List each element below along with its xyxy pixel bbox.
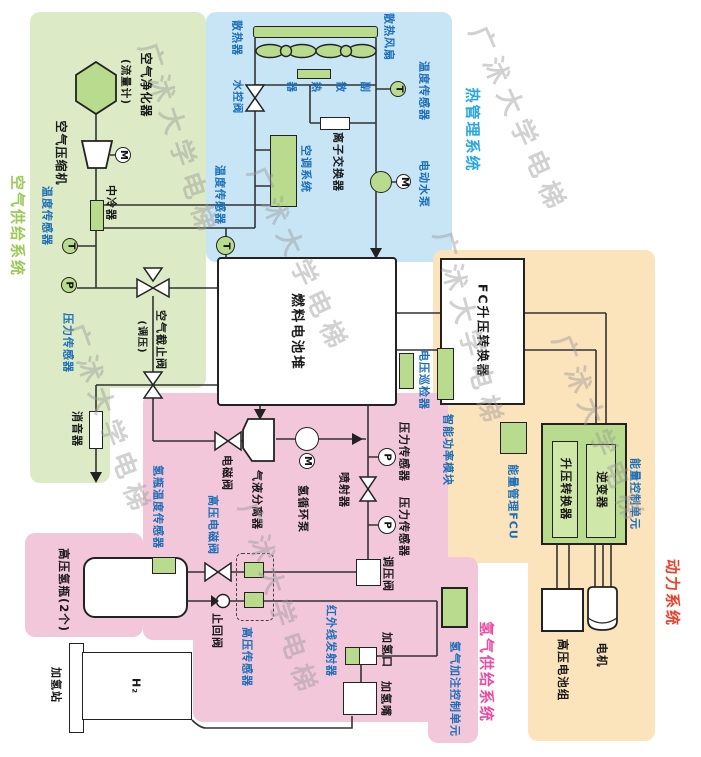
bottle-temp-sensor-label: 氢瓶温度传感器 [153,465,164,549]
air-pressure-sensor: P [61,277,77,293]
check-valve-icon [211,595,230,608]
cooling-fan-icon [256,45,376,58]
p-badge: P [382,521,392,528]
flow-meter-label: (流量计) [120,59,131,105]
h2-pressure-sensor-high: P [378,448,396,466]
injector-valve-icon [360,477,376,501]
compressor-motor: M [115,147,131,163]
ion-exchanger-label: 离子交换器 [333,132,344,192]
arrow-exhaust-out [90,472,102,483]
intercooler-label: 中冷器 [106,185,117,221]
m-badge: M [302,456,312,466]
coolant-temp-in-label: 温度传感器 [215,165,226,225]
h2-pressure-sensor-low: P [378,516,396,534]
hp-sensor-chip-1 [244,562,264,578]
regulator-valve-box [356,559,381,586]
h2-circulation-pump-motor: M [299,453,315,469]
air-temp-sensor-label: 温度传感器 [42,186,53,246]
h2-pressure-high-label: 压力传感器 [399,422,410,482]
hp-solenoid-valve-icon [205,563,231,581]
air-system-title: 空气供给系统 [10,175,25,277]
t-badge: T [65,243,75,250]
purifier-label: 空气净化器 [140,52,152,117]
flow-meter-icon [76,62,116,114]
bottles-label: 高压氢瓶(2个) [57,548,69,632]
purge-valve-label: 电磁阀 [222,455,233,491]
hp-sensor-label: 高压传感器 [242,627,253,687]
m-badge: M [398,177,408,187]
water-valve-label: 水控阀 [232,80,243,115]
hp-sensor-chip-2 [244,592,264,608]
energy-fcu-label: 能量管理FCU [508,464,519,540]
battery-label: 高压电池组 [556,639,568,702]
arrow-recirculation [352,433,363,445]
hp-solenoid-label: 高压电磁阀 [208,495,219,555]
aux-radiator-bar [297,69,331,79]
fill-control-unit-box [441,587,468,628]
coolant-temp-sensor-in: T [216,236,235,255]
air-shutoff-valve-note: (调压) [136,320,146,353]
power-system-title: 动力系统 [665,559,680,627]
ir-transmitter-patch [345,647,360,665]
h2-pressure-low-label: 压力传感器 [399,497,410,557]
energy-control-label: 能量控制单元 [630,458,641,530]
water-pump-motor: M [396,174,411,189]
air-shutoff-valve-label: 空气截止阀 [156,310,167,370]
radiator-bar [253,26,378,38]
thermal-system-title: 热管理系统 [465,87,480,172]
t-badge: T [393,86,403,93]
radiator-label: 散热器 [232,20,243,56]
intercooler-box [90,200,104,231]
ion-exchanger-box [320,117,350,130]
water-control-valve-icon [246,85,264,111]
separator-label: 气液分离器 [252,470,263,530]
voltage-monitor-label: 电压巡检器 [419,350,430,410]
fill-port-label: 加氢口 [382,632,393,668]
p-badge: P [64,281,74,288]
h2-circulation-pump-body [295,427,319,451]
inverter-label: 逆变器 [595,471,607,509]
fill-control-label: 氢气加注控制单元 [450,641,461,737]
m-badge: M [118,150,128,160]
aux-radiator-label: 副散热器 [273,81,371,92]
hv-battery-box [541,588,584,632]
coolant-temp-out-label: 温度传感器 [419,61,430,121]
fuel-cell-stack-label: 燃料电池堆 [289,293,303,371]
fuel-cell-stack [217,257,397,406]
air-temp-sensor: T [62,238,78,254]
motor-label: 电机 [595,643,607,668]
energy-fcu-box [500,422,527,454]
station-label: 加氢站 [51,667,62,703]
ir-transmitter-label: 红外线发射器 [326,605,337,677]
muffler-box [89,411,103,449]
power-module-bar [437,348,454,400]
power-module-label: 智能功率模块 [443,414,454,486]
air-pressure-sensor-label: 压力传感器 [63,313,74,373]
muffler-label: 消音器 [72,411,83,447]
t-badge: T [220,242,230,249]
check-valve-label: 止回阀 [212,613,223,649]
h2-tank-label: H₂ [131,678,142,694]
ac-system-box [270,135,297,207]
air-three-way-valve-icon [137,268,169,297]
purge-solenoid-valve-icon [215,432,241,450]
water-pump-body [370,171,392,193]
cooling-fan-label: 散热风扇 [384,13,395,61]
motor-icon [588,587,617,630]
coolant-temp-sensor-out: T [390,81,406,97]
fill-nozzle-box [343,682,377,715]
injector-label: 喷射器 [339,472,350,508]
voltage-monitor-bar [399,353,414,389]
compressor-label: 空气压缩机 [55,120,67,185]
compressor-icon [82,141,112,168]
fuel-cell-system-diagram: T P M T T M M P P 空气供给系统 空气净化器 (流量计) 空气压… [0,0,701,757]
bottle-temp-sensor-patch [152,557,176,574]
fc-converter-label: FC升压转换器 [476,284,489,378]
circulation-pump-label: 氢循环泵 [298,485,309,533]
gas-liquid-separator-icon [243,419,274,461]
p-badge: P [382,453,392,460]
hydrogen-system-title: 氢气供给系统 [479,621,494,723]
fill-nozzle-label: 加氢嘴 [381,681,392,717]
water-pump-label: 电动水泵 [419,160,430,208]
boost-converter-label: 升压转换器 [559,458,571,521]
regulator-label: 调压阀 [383,556,394,592]
ac-system-label: 空调系统 [301,145,312,193]
